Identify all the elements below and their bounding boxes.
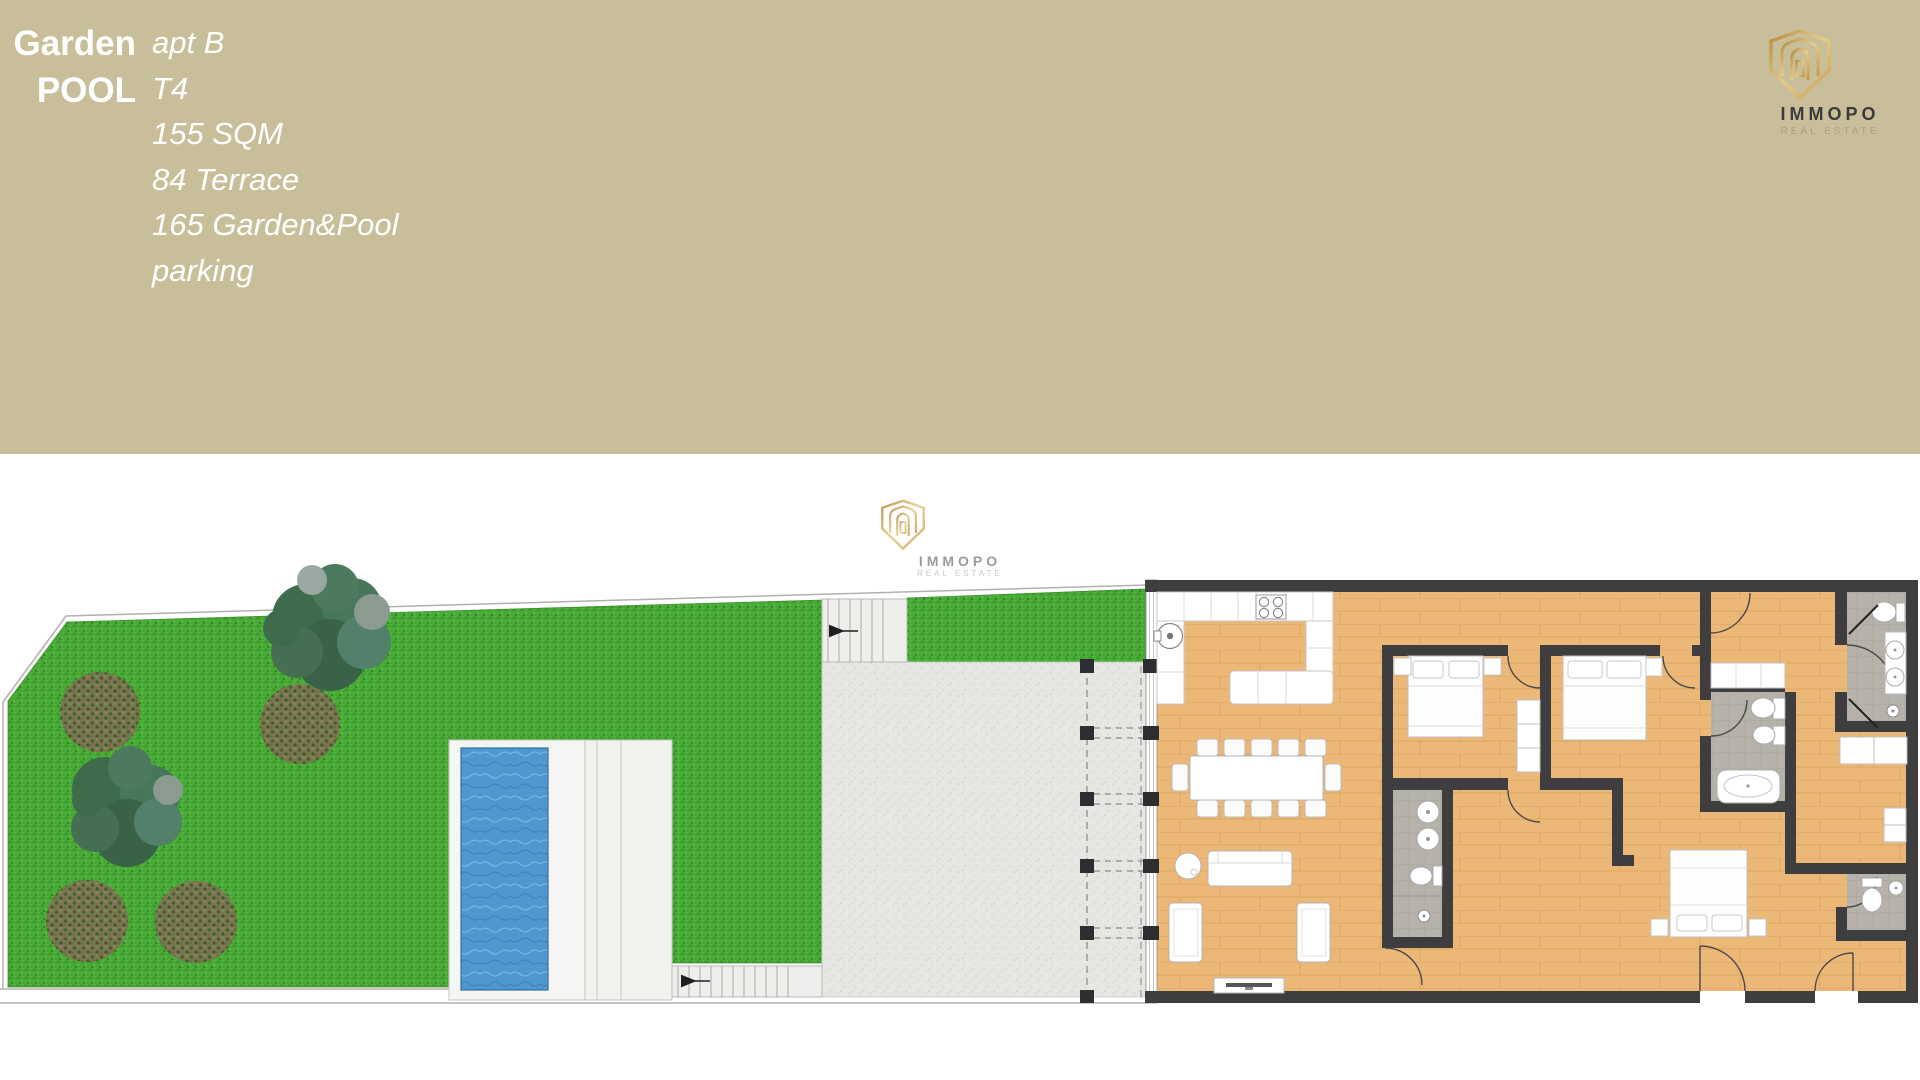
brand-shield-icon [1768, 30, 1832, 100]
dining-set [1172, 739, 1341, 817]
garden-stairs-upper [822, 599, 907, 662]
sink-icon [1889, 881, 1903, 895]
detail-garden-pool: 165 Garden&Pool [152, 202, 398, 248]
stove-icon [1256, 595, 1286, 619]
toilet-icon [1410, 866, 1442, 886]
watermark-shield-icon [880, 500, 926, 550]
plan-title: Garden POOL [0, 20, 136, 114]
watermark-name: IMMOPO [880, 553, 1040, 569]
detail-terrace: 84 Terrace [152, 157, 398, 203]
detail-type: T4 [152, 66, 398, 112]
toilet-icon [1751, 698, 1785, 719]
dining-table [1190, 756, 1323, 800]
toilet-icon [1862, 878, 1882, 912]
plan-details: apt B T4 155 SQM 84 Terrace 165 Garden&P… [152, 20, 398, 293]
plan-title-line1: Garden [0, 20, 136, 67]
sofa [1208, 851, 1292, 886]
detail-parking: parking [152, 248, 398, 294]
pool-water [461, 748, 548, 990]
watermark-tagline: REAL ESTATE [880, 569, 1040, 578]
page: Garden POOL apt B T4 155 SQM 84 Terrace … [0, 0, 1920, 1080]
shower-head-icon [1887, 705, 1899, 717]
garden-stairs-lower [672, 966, 822, 997]
wardrobe [1711, 663, 1785, 688]
shower-head-icon [1418, 910, 1430, 922]
brand-logo: IMMOPO REAL ESTATE [1768, 30, 1892, 137]
apartment [1143, 580, 1918, 1003]
bathtub-icon [1717, 770, 1780, 803]
terrace [822, 662, 1148, 997]
brand-tagline: REAL ESTATE [1768, 126, 1892, 137]
detail-apartment: apt B [152, 20, 398, 66]
header-band: Garden POOL apt B T4 155 SQM 84 Terrace … [0, 0, 1920, 454]
closet [1884, 808, 1906, 842]
pool-area [449, 740, 672, 1000]
plan-title-line2: POOL [0, 67, 136, 114]
wardrobe [1517, 700, 1540, 772]
detail-area: 155 SQM [152, 111, 398, 157]
garden-lawn-strip [907, 589, 1146, 662]
coffee-table [1175, 853, 1201, 879]
bidet-icon [1753, 726, 1785, 745]
tv-console [1214, 978, 1284, 993]
closet-row [1840, 737, 1907, 764]
double-vanity [1885, 632, 1906, 694]
watermark-logo: IMMOPO REAL ESTATE [880, 500, 1040, 578]
brand-name: IMMOPO [1768, 104, 1892, 125]
pool-deck-steps [585, 740, 672, 1000]
